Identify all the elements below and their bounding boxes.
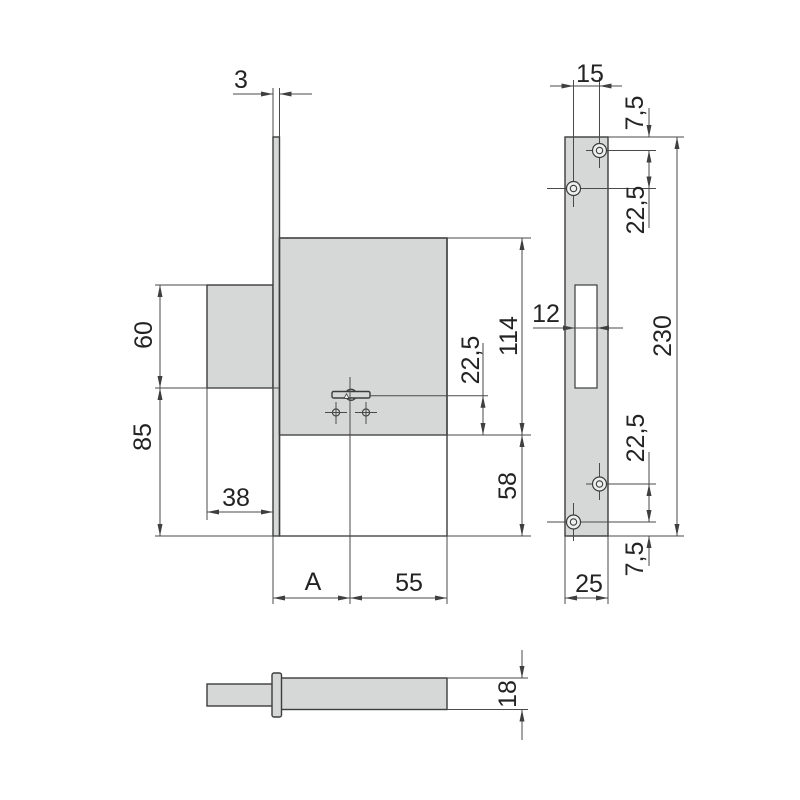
dim-backset: A [273,568,350,598]
dim-label: 3 [234,66,248,94]
dim-plate-width: 25 [565,570,608,598]
bolt-head [207,684,273,706]
dim-label: 22,5 [622,414,650,463]
lock-dimension-drawing: 3 60 85 38 22,5 114 [0,0,800,800]
dim-block-height: 60 [130,285,160,388]
faceplate-slot [575,285,597,388]
dim-block-depth: 38 [207,484,273,512]
dim-label: 58 [494,472,522,500]
screw-hole-outer [593,477,607,491]
dim-case-height: 114 [495,238,523,435]
dim-hole-x-offset: 15 [550,60,622,88]
dim-label: 7,5 [621,96,649,131]
dim-label: 22,5 [622,186,650,235]
keyhole-bar [332,392,370,399]
dim-key-axis-offset: 22,5 [457,336,485,435]
dim-label: 18 [494,680,522,708]
screw-hole-outer [567,182,581,196]
cylinder-block [207,285,273,388]
dim-bottom-hole-margin: 7,5 [621,536,649,576]
dim-label: 230 [649,315,677,357]
front-view: 3 60 85 38 22,5 114 [129,66,531,604]
dim-label: 55 [395,569,423,597]
dim-key-to-case-edge: 55 [350,569,447,598]
bolt-body [281,678,447,710]
faceplate-view: 15 7,5 22,5 12 230 22,5 [532,60,684,604]
dim-label: 25 [575,570,603,598]
technical-drawing-page: 3 60 85 38 22,5 114 [0,0,800,800]
lock-case [280,238,448,435]
dim-top-hole-margin: 7,5 [621,96,649,137]
dim-plate-length: 230 [649,137,677,536]
faceplate-edge-view [273,137,280,536]
dim-label: A [305,568,322,596]
dim-bottom-margin: 58 [494,435,522,536]
dim-label: 15 [576,60,604,88]
dim-lower-height: 85 [129,388,160,536]
dim-label: 22,5 [457,336,485,385]
dim-label: 85 [129,423,157,451]
dim-label: 7,5 [621,542,649,577]
dim-label: 12 [532,300,560,328]
dim-label: 38 [222,484,250,512]
dim-lower-hole-pitch: 22,5 [622,414,650,522]
bolt-view: 18 [207,650,528,740]
dim-label: 114 [495,316,523,356]
dim-label: 60 [130,321,158,349]
screw-hole-outer [567,515,581,529]
dim-bolt-thickness: 18 [494,650,522,740]
keyhole [332,389,370,400]
dim-upper-hole-pitch: 22,5 [622,151,650,235]
screw-hole-outer [593,144,607,158]
bolt-faceplate-section [272,673,282,717]
